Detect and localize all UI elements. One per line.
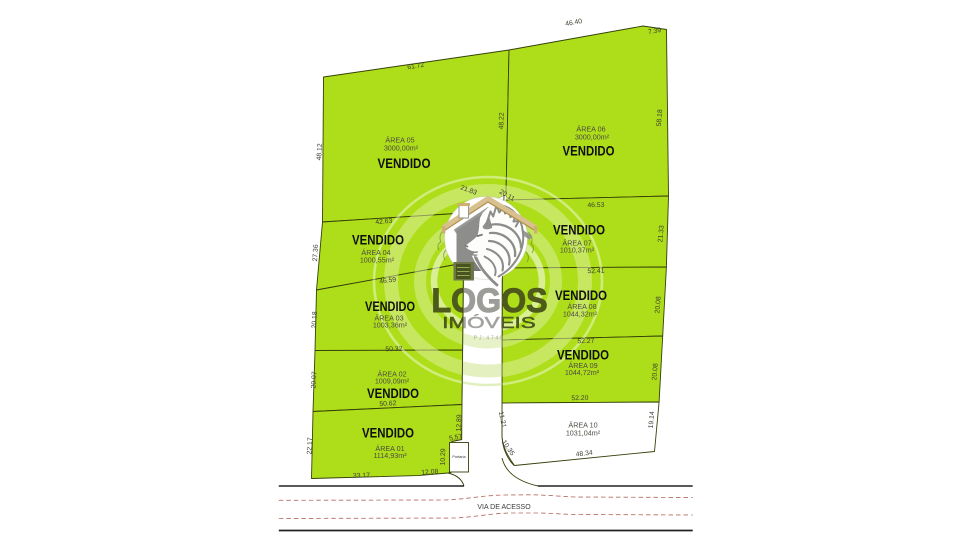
svg-text:1009,09m²: 1009,09m² [375, 377, 410, 386]
svg-text:VENDIDO: VENDIDO [563, 143, 615, 158]
svg-text:46.53: 46.53 [587, 202, 604, 210]
svg-text:20.08: 20.08 [651, 363, 659, 381]
svg-text:1044,32m²: 1044,32m² [563, 310, 598, 319]
svg-text:12.89: 12.89 [456, 414, 464, 431]
svg-text:20.08: 20.08 [654, 296, 662, 314]
svg-text:22.17: 22.17 [306, 437, 314, 455]
svg-text:1010,37m²: 1010,37m² [560, 246, 595, 255]
svg-text:VENDIDO: VENDIDO [352, 233, 404, 248]
svg-text:20.07: 20.07 [311, 371, 319, 389]
svg-text:1031,04m²: 1031,04m² [566, 429, 601, 438]
svg-text:PJ:4745: PJ:4745 [473, 336, 504, 342]
svg-text:VENDIDO: VENDIDO [367, 386, 419, 401]
svg-text:Portaria: Portaria [452, 455, 466, 459]
svg-text:42.63: 42.63 [375, 218, 393, 226]
svg-text:1003,36m²: 1003,36m² [373, 321, 408, 330]
svg-text:VIA DE ACESSO: VIA DE ACESSO [477, 504, 531, 511]
svg-text:48.22: 48.22 [498, 112, 506, 129]
svg-text:1044,72m²: 1044,72m² [565, 368, 600, 377]
svg-text:50.32: 50.32 [385, 346, 402, 354]
svg-text:19.14: 19.14 [648, 411, 656, 429]
svg-text:VENDIDO: VENDIDO [555, 288, 607, 303]
svg-text:3000,00m²: 3000,00m² [575, 133, 610, 142]
svg-text:52.27: 52.27 [577, 338, 594, 346]
svg-text:1114,93m²: 1114,93m² [373, 451, 407, 460]
svg-text:52.41: 52.41 [587, 268, 604, 275]
svg-text:VENDIDO: VENDIDO [365, 299, 415, 314]
svg-text:VENDIDO: VENDIDO [362, 426, 414, 441]
svg-text:1000,55m²: 1000,55m² [360, 256, 395, 265]
svg-text:21.33: 21.33 [657, 225, 665, 243]
svg-text:52.20: 52.20 [571, 395, 588, 403]
svg-text:33.17: 33.17 [353, 472, 370, 480]
svg-text:27.36: 27.36 [312, 244, 320, 262]
svg-text:12.08: 12.08 [421, 468, 439, 476]
svg-text:VENDIDO: VENDIDO [553, 223, 605, 238]
svg-text:48.12: 48.12 [316, 143, 324, 161]
svg-text:58.18: 58.18 [656, 109, 664, 127]
svg-text:VENDIDO: VENDIDO [378, 156, 431, 171]
svg-text:50.62: 50.62 [379, 400, 397, 408]
svg-text:3000,00m²: 3000,00m² [384, 144, 419, 153]
svg-text:20.18: 20.18 [311, 311, 319, 329]
svg-text:10.29: 10.29 [440, 448, 448, 465]
